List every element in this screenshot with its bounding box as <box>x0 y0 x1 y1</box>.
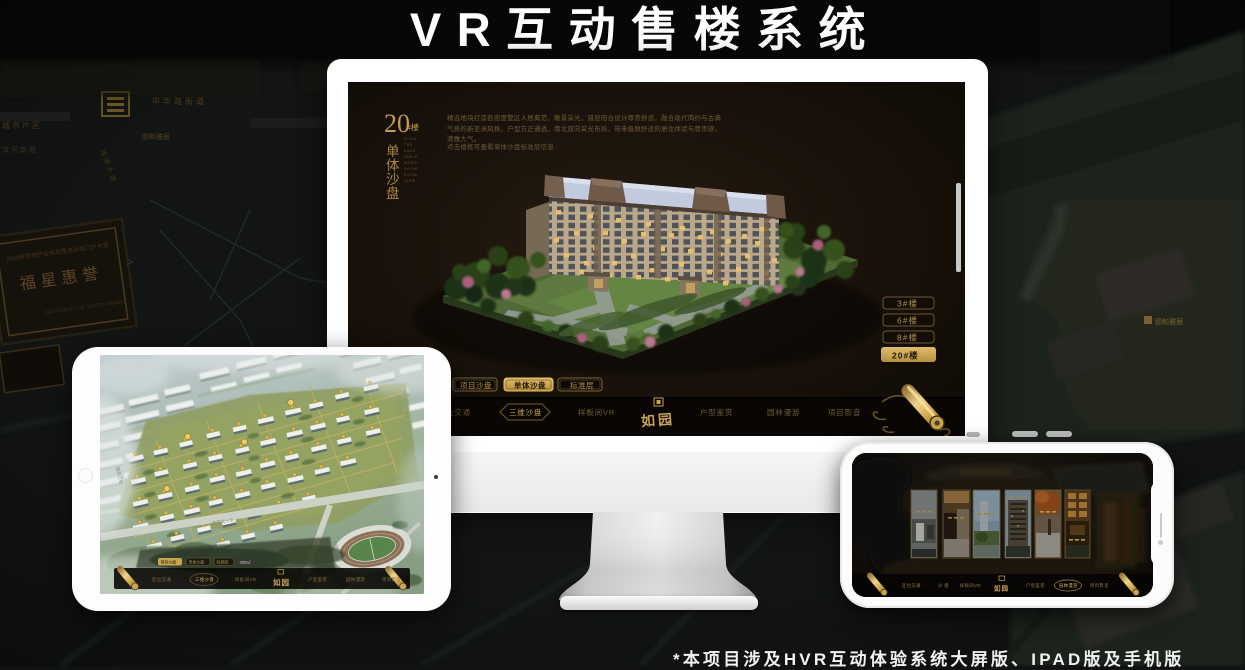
svg-text:S A N D: S A N D <box>404 149 416 153</box>
svg-text:滨河新路: 滨河新路 <box>2 145 38 154</box>
svg-text:户型鉴赏: 户型鉴赏 <box>1026 582 1045 589</box>
svg-text:如园: 如园 <box>273 577 290 587</box>
svg-text:城市片区: 城市片区 <box>2 120 42 130</box>
svg-text:三维沙盘: 三维沙盘 <box>195 576 214 583</box>
svg-text:样板间VR: 样板间VR <box>578 407 615 417</box>
svg-text:样板间VR: 样板间VR <box>235 576 256 583</box>
svg-text:R O O M: R O O M <box>404 173 417 177</box>
svg-text:项目沙盘: 项目沙盘 <box>460 380 492 390</box>
svg-text:颐和雅居: 颐和雅居 <box>142 132 170 141</box>
svg-text:园林漫游: 园林漫游 <box>346 576 365 583</box>
svg-text:精选地块打造低密度墅区人居典范，瞰景采光，错层阳台设计尊崇舒: 精选地块打造低密度墅区人居典范，瞰景采光，错层阳台设计尊崇舒适，融合现代简约与古… <box>447 113 722 122</box>
svg-text:沙: 沙 <box>386 172 400 187</box>
svg-text:单体沙盘: 单体沙盘 <box>189 560 205 565</box>
svg-text:V I L L A: V I L L A <box>404 137 417 141</box>
svg-text:园林漫游: 园林漫游 <box>767 407 800 417</box>
svg-text:颐和雅居: 颐和雅居 <box>1155 317 1183 326</box>
svg-text:>: > <box>126 254 134 269</box>
svg-text:单: 单 <box>386 144 400 159</box>
svg-text:盘: 盘 <box>386 185 400 201</box>
svg-text:标准层: 标准层 <box>570 380 594 390</box>
svg-text:6#楼: 6#楼 <box>897 316 918 326</box>
svg-text:户型鉴赏: 户型鉴赏 <box>700 407 733 417</box>
svg-text:如园: 如园 <box>994 584 1009 593</box>
svg-text:1580㎡: 1580㎡ <box>240 560 252 565</box>
svg-text:三维沙盘: 三维沙盘 <box>509 407 542 417</box>
svg-text:项目影音: 项目影音 <box>1090 582 1109 589</box>
svg-text:8#楼: 8#楼 <box>897 333 918 343</box>
svg-text:T H E: T H E <box>404 143 412 147</box>
svg-text:项目影音: 项目影音 <box>382 576 401 583</box>
svg-text:户型鉴赏: 户型鉴赏 <box>308 576 327 583</box>
svg-text:#楼: #楼 <box>407 122 419 132</box>
svg-text:3#楼: 3#楼 <box>897 299 918 309</box>
svg-text:M O D E L: M O D E L <box>404 161 419 165</box>
svg-text:项目影音: 项目影音 <box>828 407 861 417</box>
svg-text:体: 体 <box>386 158 400 173</box>
svg-text:中华路街道: 中华路街道 <box>152 96 207 106</box>
svg-text:标准层: 标准层 <box>217 560 229 565</box>
svg-text:区位交通: 区位交通 <box>902 582 921 589</box>
svg-text:S H O W: S H O W <box>404 167 417 171</box>
svg-text:20#楼: 20#楼 <box>892 351 919 361</box>
svg-text:园林漫游: 园林漫游 <box>1059 582 1078 589</box>
svg-text:项目沙盘: 项目沙盘 <box>161 560 177 565</box>
svg-text:点击楼栋可查看单体沙盘标准层信息: 点击楼栋可查看单体沙盘标准层信息 <box>447 142 554 151</box>
svg-text:沙 盘: 沙 盘 <box>938 582 949 588</box>
svg-text:样板间VR: 样板间VR <box>960 582 981 589</box>
svg-text:V I E W: V I E W <box>404 179 415 183</box>
svg-text:清雅大气。: 清雅大气。 <box>447 134 480 143</box>
svg-text:气质的新亚洲风格，户型方正通透，南北双向采光布局，带来极致舒: 气质的新亚洲风格，户型方正通透，南北双向采光布局，带来极致舒适的居住体验与尊崇感… <box>447 124 721 133</box>
svg-text:T A B L E: T A B L E <box>404 155 417 159</box>
svg-text:单体沙盘: 单体沙盘 <box>514 380 546 390</box>
svg-text:区位交通: 区位交通 <box>152 576 171 583</box>
